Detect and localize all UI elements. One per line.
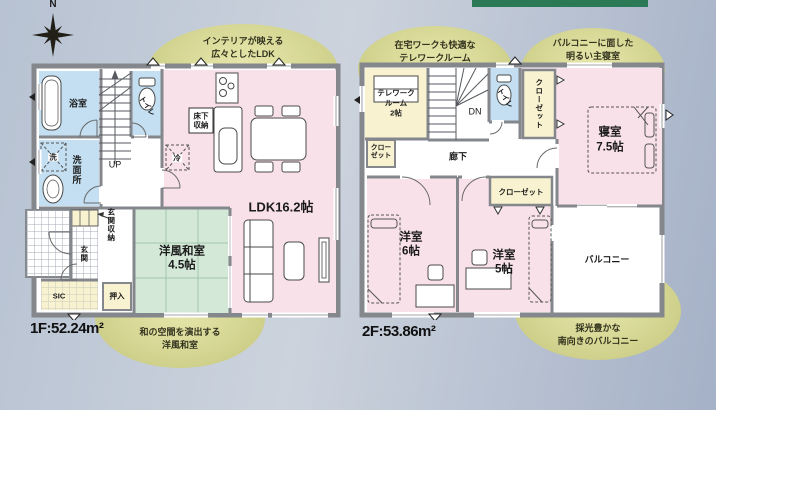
- compass-n-label: N: [49, 0, 56, 10]
- callout-balcony-line2: 南向きのバルコニー: [488, 335, 708, 348]
- room-label-bedroom-2: 7.5帖: [596, 142, 624, 154]
- label-hallway: 廊下: [449, 153, 467, 162]
- room-label-telework-1: テレワーク: [377, 89, 415, 97]
- room-label-washroom: 洗面所: [72, 155, 81, 185]
- callout-washitsu-line2: 洋風和室: [70, 339, 290, 352]
- label-fridge: 冷: [172, 154, 182, 162]
- label-sic: SIC: [53, 292, 66, 300]
- room-label-balcony: バルコニー: [585, 256, 630, 265]
- room-label-west6-1: 洋室: [400, 232, 423, 244]
- room-label-washitsu-1: 洋風和室: [159, 246, 205, 258]
- callout-balcony-line1: 採光豊かな: [488, 322, 708, 335]
- callout-ldk-line1: インテリアが映える: [133, 35, 353, 48]
- room-label-west5-1: 洋室: [493, 250, 516, 262]
- label-washer: 洗: [48, 153, 58, 161]
- area-label-2f: 2F:53.86m²: [362, 323, 435, 340]
- callout-ldk: インテリアが映える 広々としたLDK: [133, 35, 353, 60]
- compass-north-icon: N: [30, 0, 76, 62]
- label-entrance-storage: 玄関収納: [107, 208, 115, 242]
- floorplan-2f: テレワーク ルーム 2帖 DN トイレ クローゼット クロー ゼット 廊下 寝室…: [352, 56, 676, 320]
- room-label-bedroom-1: 寝室: [599, 127, 622, 139]
- room-label-bath: 浴室: [69, 100, 87, 109]
- label-floor-storage-1: 床下: [194, 112, 209, 120]
- callout-ldk-line2: 広々としたLDK: [133, 48, 353, 61]
- label-closet-tall: クローゼット: [535, 79, 543, 130]
- callout-bedroom: バルコニーに面した 明るい主寝室: [483, 37, 703, 62]
- label-closet-w5: クローゼット: [499, 188, 544, 196]
- label-stairs-dn: DN: [469, 108, 482, 117]
- label-floor-storage-2: 収納: [194, 121, 209, 129]
- label-oshiire: 押入: [110, 292, 125, 300]
- callout-balcony: 採光豊かな 南向きのバルコニー: [488, 322, 708, 347]
- room-label-west5-2: 5帖: [495, 264, 513, 276]
- callout-bedroom-line2: 明るい主寝室: [483, 50, 703, 63]
- top-accent-bar: [472, 0, 648, 7]
- label-closet-small-1: クロー: [371, 146, 391, 153]
- label-entrance: 玄関: [80, 246, 88, 263]
- room-label-ldk: LDK16.2帖: [248, 201, 313, 214]
- room-label-washitsu-2: 4.5帖: [168, 260, 196, 272]
- area-label-1f: 1F:52.24m²: [30, 320, 103, 337]
- room-label-telework-2: ルーム: [385, 99, 407, 107]
- callout-bedroom-line1: バルコニーに面した: [483, 37, 703, 50]
- label-closet-small-2: ゼット: [371, 154, 391, 161]
- label-stairs-up: UP: [109, 161, 122, 170]
- floorplan-1f: 浴室 洗面所 洗 トイレ UP 床下 収納 冷 LDK16.2帖 玄関収納 玄関…: [20, 56, 344, 320]
- room-label-telework-3: 2帖: [390, 109, 402, 117]
- room-label-west6-2: 6帖: [402, 246, 420, 258]
